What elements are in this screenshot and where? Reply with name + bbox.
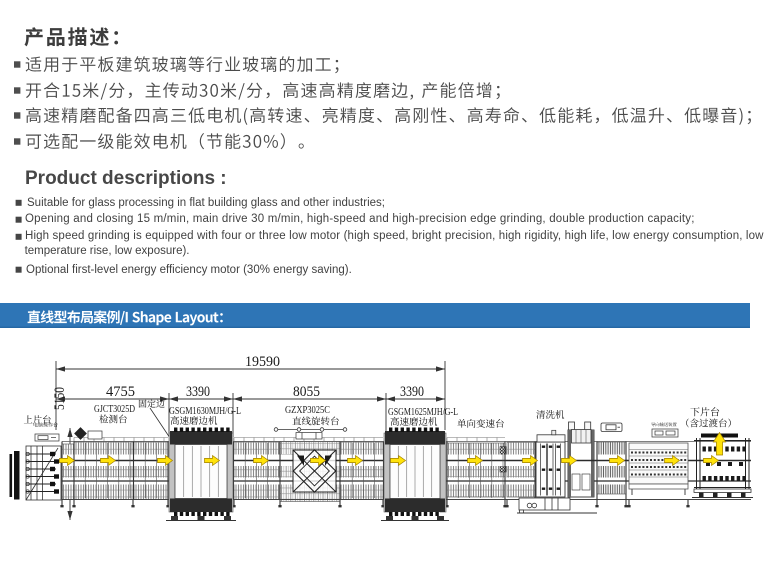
svg-text:GSGM1630MJH/G-L: GSGM1630MJH/G-L xyxy=(169,406,241,417)
svg-text:3390: 3390 xyxy=(186,384,210,400)
svg-text:3390: 3390 xyxy=(400,384,424,400)
svg-text:8055: 8055 xyxy=(293,384,320,400)
svg-text:GJCT3025D: GJCT3025D xyxy=(94,404,135,415)
svg-text:GSGM1625MJH/G-L: GSGM1625MJH/G-L xyxy=(388,407,458,418)
svg-text:GZXP3025C: GZXP3025C xyxy=(285,405,330,416)
svg-text:19590: 19590 xyxy=(245,354,280,370)
svg-text:4755: 4755 xyxy=(106,384,135,400)
svg-text:5150: 5150 xyxy=(52,387,68,410)
